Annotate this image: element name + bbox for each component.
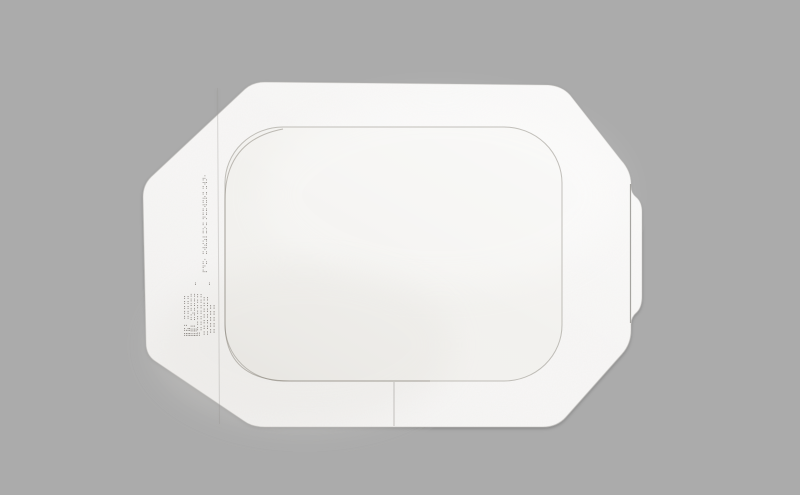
film-lowlight (155, 265, 455, 425)
film-highlight (260, 100, 620, 290)
dot-matrix-mark-right: ⠒ (207, 282, 214, 286)
dressing-photo: ⠏⠙⠭⠂ ⠭⠺⠮⠵⠇⠭⠕⠭ ⠝⠭⠭⠺⠭⠗⠭ ⠭⠺⠝⠂ ⠒ ⠒ ⣿⣯⠃ ⠭⠭⠭⠭⠭… (0, 0, 800, 495)
photo-canvas: ⠏⠙⠭⠂ ⠭⠺⠮⠵⠇⠭⠕⠭ ⠝⠭⠭⠺⠭⠗⠭ ⠭⠺⠝⠂ ⠒ ⠒ ⣿⣯⠃ ⠭⠭⠭⠭⠭… (0, 0, 800, 495)
dot-matrix-size-print: ⠏⠙⠭⠂ ⠭⠺⠮⠵⠇⠭⠕⠭ ⠝⠭⠭⠺⠭⠗⠭ ⠭⠺⠝⠂ (203, 173, 210, 273)
dot-matrix-mark-left: ⠒ (193, 282, 200, 286)
dressing (143, 82, 642, 427)
logo-print-line: ⠭⠭⠭⠭⠭ (210, 304, 217, 334)
